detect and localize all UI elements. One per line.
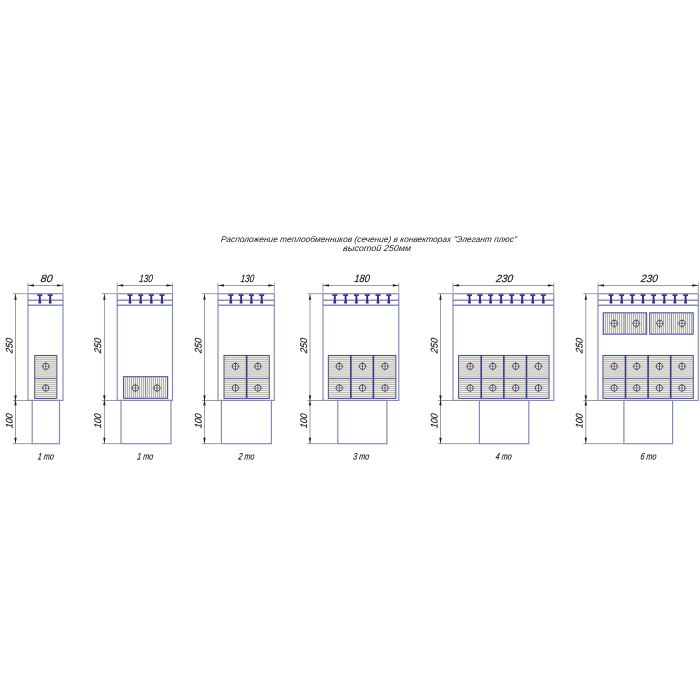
svg-text:250: 250 xyxy=(299,337,310,355)
svg-text:230: 230 xyxy=(639,273,659,285)
svg-text:4 mо: 4 mо xyxy=(495,451,512,462)
svg-text:6 mо: 6 mо xyxy=(640,451,657,462)
svg-text:100: 100 xyxy=(575,412,586,428)
svg-text:230: 230 xyxy=(494,273,514,285)
svg-text:3 mо: 3 mо xyxy=(353,451,370,462)
svg-text:1 mо: 1 mо xyxy=(37,451,54,462)
svg-text:250: 250 xyxy=(4,337,15,355)
svg-text:250: 250 xyxy=(193,337,204,355)
svg-text:1 mо: 1 mо xyxy=(137,451,154,462)
svg-text:высотой 250мм: высотой 250мм xyxy=(343,243,412,253)
svg-text:80: 80 xyxy=(40,273,54,285)
svg-text:100: 100 xyxy=(299,412,310,428)
svg-text:250: 250 xyxy=(575,337,586,355)
svg-text:100: 100 xyxy=(4,412,15,428)
svg-text:100: 100 xyxy=(93,412,104,428)
svg-text:130: 130 xyxy=(240,273,255,285)
svg-text:100: 100 xyxy=(193,412,204,428)
svg-text:100: 100 xyxy=(429,412,440,428)
svg-text:250: 250 xyxy=(93,337,104,355)
svg-text:2 mо: 2 mо xyxy=(237,451,255,462)
svg-text:130: 130 xyxy=(139,273,154,285)
svg-text:180: 180 xyxy=(354,273,371,285)
svg-text:250: 250 xyxy=(429,337,440,355)
